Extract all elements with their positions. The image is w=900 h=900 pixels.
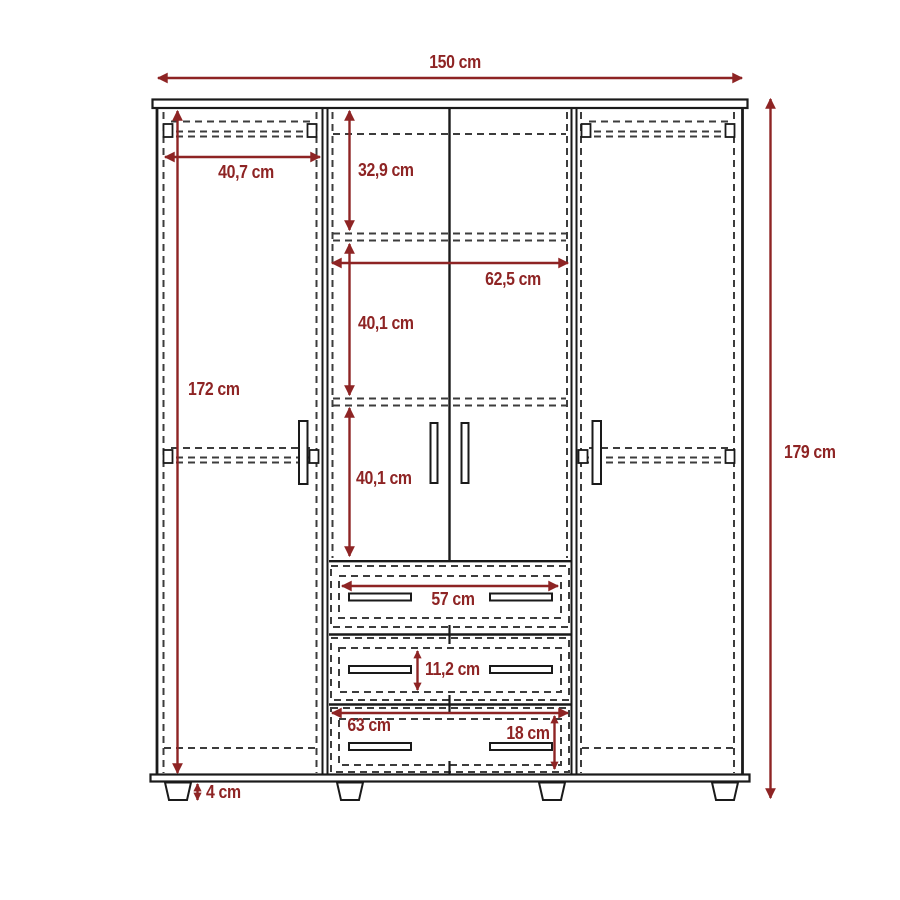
dim-label-total-height: 179 cm bbox=[784, 443, 836, 461]
right-top-rod bbox=[582, 122, 735, 137]
feet bbox=[165, 783, 738, 801]
dim-label-upper-shelf-gap: 40,1 cm bbox=[358, 314, 414, 332]
drawer-1-handle-left bbox=[349, 594, 411, 601]
dim-label-left-rod-width: 40,7 cm bbox=[218, 163, 274, 181]
top-panel bbox=[153, 100, 748, 109]
dim-label-drawer-front-height: 11,2 cm bbox=[425, 660, 480, 678]
right-door-handle bbox=[593, 421, 602, 484]
foot-3 bbox=[539, 783, 565, 801]
dim-label-bottom-drawer-width: 63 cm bbox=[347, 716, 390, 734]
drawer-2-handle-left bbox=[349, 666, 411, 673]
dim-label-drawer-handle-span: 57 cm bbox=[431, 590, 474, 608]
right-mid-rod bbox=[582, 448, 735, 463]
dim-label-bottom-drawer-height: 18 cm bbox=[506, 724, 549, 742]
dim-label-interior-height: 172 cm bbox=[188, 380, 240, 398]
left-top-rod bbox=[164, 122, 318, 137]
foot-1 bbox=[165, 783, 191, 801]
cabinet-structure bbox=[151, 100, 750, 801]
left-mid-rod bbox=[164, 448, 318, 463]
foot-4 bbox=[712, 783, 738, 801]
foot-2 bbox=[337, 783, 363, 801]
dim-label-center-width: 62,5 cm bbox=[485, 270, 541, 288]
center-left-door-handle bbox=[431, 423, 438, 483]
dim-label-total-width: 150 cm bbox=[429, 53, 481, 71]
left-door-handle bbox=[299, 421, 308, 484]
drawer-1-handle-right bbox=[490, 594, 552, 601]
drawer-3-handle-left bbox=[349, 743, 411, 750]
center-right-door-handle bbox=[462, 423, 469, 483]
wardrobe-technical-drawing: 150 cm 40,7 cm 32,9 cm 62,5 cm 40,1 cm 4… bbox=[0, 0, 900, 900]
drawer-3-handle-right bbox=[490, 743, 552, 750]
dim-label-lower-shelf-gap: 40,1 cm bbox=[356, 469, 412, 487]
drawer-2-handle-right bbox=[490, 666, 552, 673]
dim-label-top-section-height: 32,9 cm bbox=[358, 161, 414, 179]
bottom-panel bbox=[151, 775, 750, 782]
wardrobe-diagram-svg bbox=[0, 0, 900, 900]
dim-label-leg-height: 4 cm bbox=[206, 783, 241, 801]
